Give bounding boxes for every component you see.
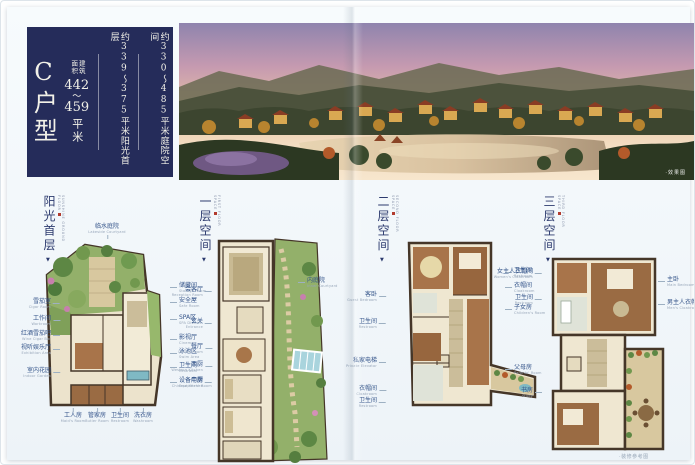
room-label: 工作间 Workroom — [31, 316, 61, 326]
room-label: 中厨 Chinese Kitchen — [172, 378, 213, 388]
room-label-cn: 餐厅 — [191, 343, 203, 350]
room-label-en: Wine Cigar Bar — [21, 338, 51, 342]
room-label-en: Lakeside Courtyard — [88, 231, 125, 235]
room-label-cn: 主卧 — [667, 276, 679, 283]
room-label-en: Butler Room — [85, 420, 109, 424]
brochure-page: C户型 建筑面积 442 ～ 459 平米 约339～375平米阳光首层 约33… — [0, 0, 695, 465]
room-label-en: Main Bedroom — [667, 284, 695, 288]
room-label: 雪茄室 Cigar Room — [29, 299, 61, 309]
room-label-en: Exhibition Area — [21, 352, 51, 356]
room-label-cn: 中厨 — [191, 377, 203, 384]
section-title: 一层空间 — [199, 195, 211, 253]
room-label: 卫生间 Restroom — [359, 398, 387, 408]
room-label-en: Private Elevator — [346, 365, 377, 369]
room-label-cn: 安全屋 — [179, 297, 197, 304]
room-label: 子女房 Children's Room — [504, 305, 545, 315]
room-label: 工人房 Maid's Room — [61, 413, 85, 423]
hero-photo: ·效果图 — [179, 23, 694, 180]
room-label: 安全屋 Safe Room — [169, 298, 200, 308]
room-label-en: Men's Cloakroom — [667, 307, 695, 311]
section-subtitle: SUNSHINE GROUND FLOOR — [57, 195, 65, 243]
triangle-down-icon: ▼ — [202, 257, 206, 263]
section-subtitle: THIRD FLOOR SPACE — [557, 195, 565, 243]
room-label-cn: 影视厅 — [179, 334, 197, 341]
room-label: 西厨 Western Kitchen — [171, 362, 213, 372]
room-label: 餐厅 Dining Room — [178, 344, 213, 354]
room-label: 卫生间 Restroom — [515, 295, 543, 305]
footer-caption: ·装修参考图 — [619, 453, 649, 460]
room-label-cn: 衣帽间 — [514, 282, 532, 289]
room-label-en: Study — [521, 395, 533, 399]
room-label-cn: 会客厅 — [185, 286, 203, 293]
room-label: 临水庭院 Lakeside Courtyard — [88, 224, 125, 234]
built-area-column: 建筑面积 442 ～ 459 平米 — [64, 60, 89, 145]
room-label-en: Reception Room — [172, 294, 203, 298]
area-unit-label: 平米 — [69, 118, 85, 144]
photo-caption: ·效果图 — [665, 169, 686, 176]
room-label-cn: 书房 — [521, 387, 533, 394]
room-label-cn: 内庭院 — [307, 277, 325, 284]
courtyard-area-label: 约330～485平米庭院空间 — [148, 32, 169, 172]
room-label-en: Cloakroom — [356, 393, 377, 397]
room-label: 衣帽间 Cloakroom — [356, 386, 387, 396]
room-label-cn: 室内花园 — [27, 367, 51, 374]
room-label-cn: 女主人衣帽间 — [497, 268, 533, 275]
room-label-cn: 洗衣房 — [134, 412, 152, 419]
room-label-en: Inner Courtyard — [307, 285, 338, 289]
section-title: 二层空间 — [377, 195, 389, 253]
room-label-en: Cloakroom — [514, 290, 535, 294]
room-label: 视听娱乐厅 Exhibition Area — [21, 345, 61, 355]
room-label-cn: 雪茄室 — [33, 298, 51, 305]
room-label: 内庭院 Inner Courtyard — [297, 278, 338, 288]
room-label-cn: 卫生间 — [359, 318, 377, 325]
area-from-value: 442 — [64, 79, 89, 93]
room-label: 洗衣房 Washroom — [133, 413, 153, 423]
area-to-value: 459 — [64, 101, 89, 115]
section-subtitle: SECOND FLOOR SPACE — [391, 195, 399, 243]
divider-line — [98, 54, 99, 150]
room-label-cn: 男主人衣帽间 — [667, 299, 695, 306]
room-label-cn: 工作间 — [33, 315, 51, 322]
room-label-cn: 红酒雪茄吧 — [21, 330, 51, 337]
room-label-en: Swim Area — [179, 356, 199, 360]
room-label-cn: 父母房 — [514, 364, 532, 371]
room-label: 男主人衣帽间 Men's Cloakroom — [657, 300, 695, 310]
room-label-cn: 临水庭院 — [95, 223, 119, 230]
book-spread: C户型 建筑面积 442 ～ 459 平米 约339～375平米阳光首层 约33… — [7, 7, 690, 460]
unit-type-label: C户型 — [31, 58, 55, 146]
room-label-cn: 卫生间 — [515, 294, 533, 301]
room-label: 私家电梯 Private Elevator — [346, 358, 387, 368]
room-label-en: Dining Room — [178, 351, 203, 355]
room-label-en: Entrance — [186, 326, 203, 330]
room-label-cn: 玄关 — [191, 318, 203, 325]
room-label-en: Workroom — [31, 323, 51, 327]
room-label: 卫生间 Restroom — [359, 319, 387, 329]
room-label-en: Cigar Room — [29, 306, 51, 310]
room-label-cn: 工人房 — [64, 412, 82, 419]
room-label-en: Indoor Garden — [23, 375, 51, 379]
sunshine-area-label: 约339～375平米阳光首层 — [108, 32, 129, 172]
room-label: 玄关 Entrance — [186, 319, 213, 329]
room-label: 客卧 Guest Bedroom — [347, 292, 387, 302]
room-label-en: Restroom — [359, 405, 377, 409]
room-label-cn: 西厨 — [191, 361, 203, 368]
room-label: 管家房 Butler Room — [85, 413, 109, 423]
room-label-cn: 客卧 — [365, 291, 377, 298]
section-header: 一层空间 FIRST FLOOR SPACE ▼ — [199, 195, 221, 253]
room-label-en: Guest Bedroom — [347, 299, 377, 303]
room-label: 女主人衣帽间 Women's Cloakroom — [494, 269, 543, 279]
divider-line — [138, 54, 139, 150]
triangle-down-icon: ▼ — [546, 257, 550, 263]
room-label: 书房 Study — [521, 388, 543, 398]
room-label-en: Women's Cloakroom — [494, 276, 533, 280]
room-label: 室内花园 Indoor Garden — [23, 368, 61, 378]
room-label-en: Parents' Room — [514, 372, 542, 376]
room-label-en: Western Kitchen — [171, 369, 203, 373]
triangle-down-icon: ▼ — [380, 257, 384, 263]
room-label-en: Washroom — [133, 420, 153, 424]
built-area-title: 建筑面积 — [69, 60, 84, 76]
section-header: 阳光首层 SUNSHINE GROUND FLOOR ▼ — [43, 195, 65, 253]
room-label-en: Restroom — [359, 326, 377, 330]
room-label-en: Children's Room — [514, 312, 545, 316]
section-header: 二层空间 SECOND FLOOR SPACE ▼ — [377, 195, 399, 253]
floor-plan-first-floor — [205, 233, 339, 465]
floor-plan-third-floor — [547, 253, 665, 453]
room-label: 主卧 Main Bedroom — [657, 277, 695, 287]
room-label-en: Maid's Room — [61, 420, 85, 424]
triangle-down-icon: ▼ — [46, 257, 50, 263]
unit-info-panel: C户型 建筑面积 442 ～ 459 平米 约339～375平米阳光首层 约33… — [27, 27, 173, 177]
swimming-pool — [292, 350, 322, 373]
room-label: 红酒雪茄吧 Wine Cigar Bar — [21, 331, 61, 341]
room-label-cn: 卫生间 — [111, 412, 129, 419]
room-label-cn: 视听娱乐厅 — [21, 344, 51, 351]
room-label-en: Restroom — [111, 420, 129, 424]
room-label: 衣帽间 Cloakroom — [504, 283, 535, 293]
room-label: 父母房 Parents' Room — [504, 365, 542, 375]
room-label-cn: 管家房 — [88, 412, 106, 419]
room-label-en: Safe Room — [179, 305, 200, 309]
section-title: 阳光首层 — [43, 195, 55, 253]
landscape-rendering — [179, 23, 694, 180]
section-title: 三层空间 — [543, 195, 555, 253]
section-subtitle: FIRST FLOOR SPACE — [213, 195, 221, 243]
room-label-en: Chinese Kitchen — [172, 385, 203, 389]
section-header: 三层空间 THIRD FLOOR SPACE ▼ — [543, 195, 565, 253]
room-label-cn: 卫生间 — [359, 397, 377, 404]
room-label-cn: 衣帽间 — [359, 385, 377, 392]
room-label: 卫生间 Restroom — [111, 413, 129, 423]
room-label-en: Restroom — [515, 302, 533, 306]
room-label-cn: 私家电梯 — [353, 357, 377, 364]
room-label: 会客厅 Reception Room — [172, 287, 213, 297]
